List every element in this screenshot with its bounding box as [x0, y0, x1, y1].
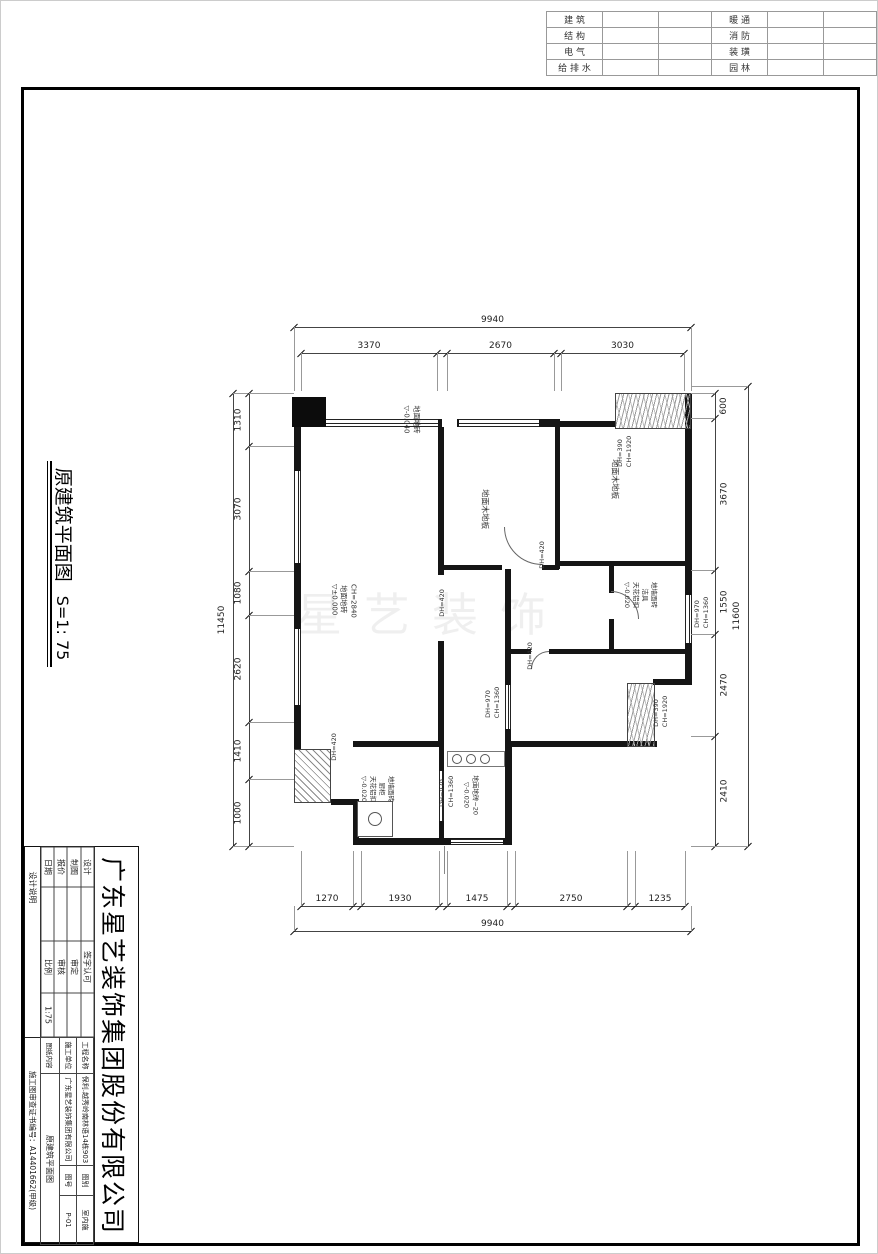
extension-line — [294, 327, 295, 391]
signature-table: 设计签字认可 制图审定 报价审核 日期比例1:75 — [41, 847, 95, 1038]
discipline-label: 建 筑 — [547, 12, 603, 28]
wall-segment — [505, 569, 511, 649]
dim-label: 600 — [719, 395, 731, 417]
extension-line — [685, 851, 686, 906]
structural-column — [292, 397, 326, 427]
wall-segment — [653, 679, 692, 685]
discipline-label: 装 璜 — [711, 44, 767, 60]
review-cert-number: 施工图审查证书编号：A14401662(甲级) — [27, 1040, 38, 1241]
discipline-label: 电 气 — [547, 44, 603, 60]
room-label: DH=970CH=1360 — [693, 600, 711, 628]
dim-label: 1310 — [233, 406, 245, 433]
drawing-type-label: 图别 — [76, 1166, 93, 1196]
column-hatch — [294, 749, 331, 803]
extension-line — [691, 736, 715, 737]
window — [451, 839, 503, 845]
window — [294, 629, 301, 705]
discipline-label: 暖 通 — [711, 12, 767, 28]
dim-label: 11450 — [217, 603, 229, 635]
dim-label: 1550 — [719, 589, 731, 616]
room-label: DH=390CH=1920 — [652, 699, 670, 727]
dim-label: 2670 — [476, 341, 526, 351]
drawing-sheet: 建 筑 暖 通 结 构 消 防 电 气 装 璜 给 排 水 园 林 原建筑平面图… — [0, 0, 878, 1254]
cooktop-burner — [480, 754, 490, 764]
dim-line — [748, 386, 749, 846]
extension-line — [691, 846, 748, 847]
wall-segment — [555, 419, 560, 569]
window — [505, 685, 511, 729]
dim-label: 3070 — [233, 495, 245, 522]
wall-segment — [549, 649, 609, 654]
content-label: 图纸内容 — [41, 1038, 60, 1074]
dim-label: 3670 — [719, 481, 731, 508]
extension-line — [439, 851, 440, 906]
discipline-label: 园 林 — [711, 60, 767, 76]
window — [326, 419, 438, 427]
title-block: 设计说明 施工图审查证书编号：A14401662(甲级) 广东星艺装饰集团股份有… — [24, 846, 139, 1243]
extension-line — [249, 779, 294, 780]
wall-segment — [438, 427, 444, 575]
extension-line — [361, 851, 362, 906]
room-label: 地面地砖~20▽-0.020 — [462, 775, 480, 814]
extension-line — [691, 393, 715, 394]
builder-value: 广东星艺装饰集团有限公司 — [59, 1074, 76, 1166]
cooktop-burner — [452, 754, 462, 764]
window — [685, 595, 692, 643]
room-label: DH=390CH=1920 — [616, 439, 634, 467]
wall-segment — [559, 421, 615, 427]
dim-label: 9940 — [468, 315, 518, 325]
extension-line — [691, 906, 692, 931]
dim-label: 3370 — [344, 341, 394, 351]
extension-line — [249, 846, 294, 847]
extension-line — [447, 353, 448, 391]
dim-label: 2750 — [546, 894, 596, 904]
sheet-title: 原建筑平面图S=1: 75 — [50, 461, 78, 667]
wall-segment — [353, 741, 444, 747]
extension-line — [249, 446, 294, 447]
extension-line — [684, 353, 685, 391]
flue-shaft-hatch — [627, 683, 655, 747]
extension-line — [507, 851, 508, 906]
cooktop-burner — [466, 754, 476, 764]
room-label: 地墙面砖厨柜天花铝扣▽-0.020 — [359, 775, 395, 803]
drawing-no-value: P-01 — [59, 1196, 76, 1245]
room-label: DH=420 — [537, 544, 546, 569]
company-name: 广东星艺装饰集团股份有限公司 — [102, 851, 132, 1241]
dim-label: 2410 — [719, 778, 731, 805]
sheet-title-text: 原建筑平面图 — [52, 468, 74, 582]
dim-label: 2470 — [719, 672, 731, 699]
room-label: 地面地砖▽-0.040 — [401, 404, 420, 434]
project-info-table: 工程名称 保利.越秀岭南林语14栋903 图别 室内施 施工单位 广东星艺装饰集… — [40, 1037, 94, 1245]
discipline-label: 消 防 — [711, 28, 767, 44]
dim-label: 1000 — [233, 799, 245, 826]
drawing-type-value: 室内施 — [76, 1196, 93, 1245]
extension-line — [561, 353, 562, 391]
extension-line — [691, 386, 748, 387]
dim-line — [301, 353, 684, 354]
dim-line — [715, 393, 716, 846]
extension-line — [294, 906, 295, 931]
project-name-label: 工程名称 — [76, 1038, 93, 1074]
extension-line — [249, 571, 294, 572]
sheet-scale: S=1: 75 — [53, 596, 72, 661]
extension-line — [249, 615, 294, 616]
extension-line — [444, 846, 445, 874]
wall-segment — [609, 561, 614, 593]
extension-line — [627, 851, 628, 906]
wall-segment — [609, 619, 614, 653]
extension-line — [691, 570, 715, 571]
extension-line — [691, 418, 715, 419]
drawing-no-label: 图号 — [59, 1166, 76, 1196]
discipline-label: 结 构 — [547, 28, 603, 44]
dim-label: 11600 — [732, 600, 744, 632]
discipline-table: 建 筑 暖 通 结 构 消 防 电 气 装 璜 给 排 水 园 林 — [546, 11, 877, 76]
dim-line — [233, 393, 234, 846]
room-label: DH=420 — [525, 645, 534, 670]
extension-line — [554, 353, 555, 391]
dim-label: 9940 — [468, 919, 518, 929]
bay-window-hatch — [615, 393, 691, 429]
room-label: DH=970CH=1360 — [438, 779, 456, 807]
room-label: DH=970CH=1360 — [484, 690, 502, 718]
builder-label: 施工单位 — [59, 1038, 76, 1074]
wall-segment — [559, 561, 689, 566]
extension-line — [249, 393, 294, 394]
design-note-label: 设计说明 — [27, 867, 38, 908]
window — [459, 419, 539, 427]
extension-line — [437, 353, 438, 391]
content-value: 原建筑平面图 — [41, 1074, 60, 1245]
dim-label: 1080 — [233, 580, 245, 607]
wall-segment — [505, 741, 512, 844]
extension-line — [691, 634, 715, 635]
extension-line — [353, 851, 354, 906]
wall-segment — [438, 565, 502, 570]
window — [294, 471, 301, 563]
extension-line — [515, 851, 516, 906]
dim-label: 1930 — [375, 894, 425, 904]
room-label: DH=420 — [329, 736, 338, 761]
project-name-value: 保利.越秀岭南林语14栋903 — [76, 1074, 93, 1166]
dim-label: 1410 — [233, 737, 245, 764]
room-label: DH=420 — [437, 592, 446, 617]
room-label: CH=2840地面地砖▽±0.000 — [329, 584, 358, 614]
sink — [368, 812, 382, 826]
extension-line — [447, 851, 448, 906]
wall-segment — [438, 641, 444, 747]
dim-label: 3030 — [598, 341, 648, 351]
dim-label: 1270 — [302, 894, 352, 904]
wall-segment — [609, 649, 689, 654]
extension-line — [249, 722, 294, 723]
extension-line — [691, 327, 692, 391]
dim-line — [294, 327, 691, 328]
dim-label: 2620 — [233, 655, 245, 682]
dim-label: 1475 — [452, 894, 502, 904]
room-label: 地面木地板 — [479, 488, 490, 530]
extension-line — [301, 353, 302, 391]
discipline-label: 给 排 水 — [547, 60, 603, 76]
wall-segment — [331, 799, 357, 805]
room-label: 地墙面砖洁具天花铝扣▽-0.020 — [622, 581, 658, 609]
dim-label: 1235 — [635, 894, 685, 904]
dim-line — [294, 931, 691, 932]
